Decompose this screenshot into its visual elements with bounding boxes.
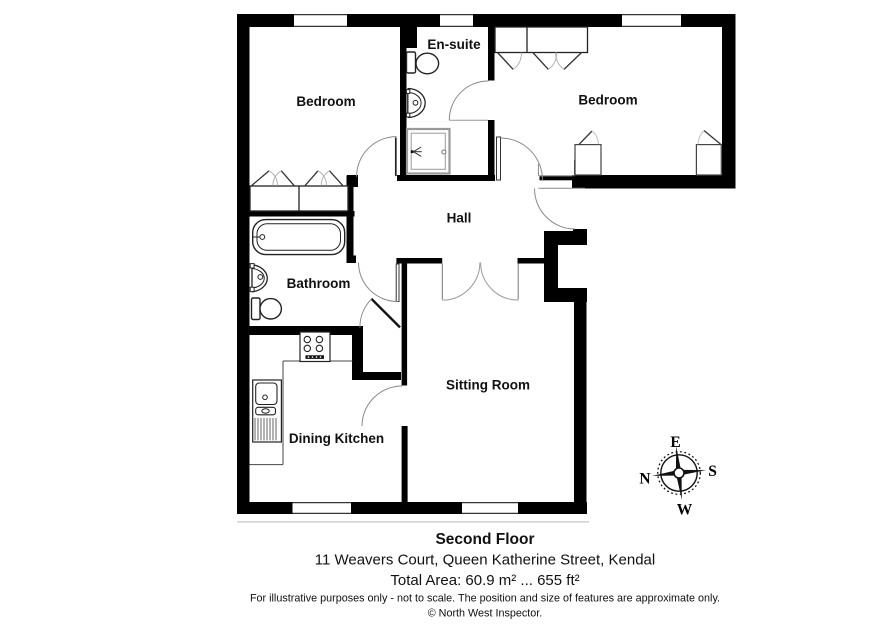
svg-text:For illustrative purposes only: For illustrative purposes only - not to … [250, 593, 720, 605]
svg-text:Bathroom: Bathroom [287, 276, 351, 291]
svg-text:En-suite: En-suite [427, 37, 481, 52]
svg-text:N: N [639, 471, 650, 488]
svg-text:© North West Inspector.: © North West Inspector. [428, 608, 543, 620]
svg-text:Second Floor: Second Floor [435, 531, 534, 548]
svg-text:Bedroom: Bedroom [578, 93, 637, 108]
svg-text:11 Weavers Court, Queen Kather: 11 Weavers Court, Queen Katherine Street… [315, 552, 655, 569]
svg-text:Bedroom: Bedroom [296, 94, 355, 109]
svg-text:Dining Kitchen: Dining Kitchen [289, 431, 384, 446]
svg-text:Total Area: 60.9 m² ... 655 ft: Total Area: 60.9 m² ... 655 ft² [390, 572, 579, 589]
svg-text:Hall: Hall [447, 211, 472, 226]
svg-text:E: E [670, 434, 680, 451]
svg-text:Sitting Room: Sitting Room [446, 378, 530, 393]
svg-text:W: W [677, 502, 693, 519]
svg-text:S: S [708, 463, 717, 480]
